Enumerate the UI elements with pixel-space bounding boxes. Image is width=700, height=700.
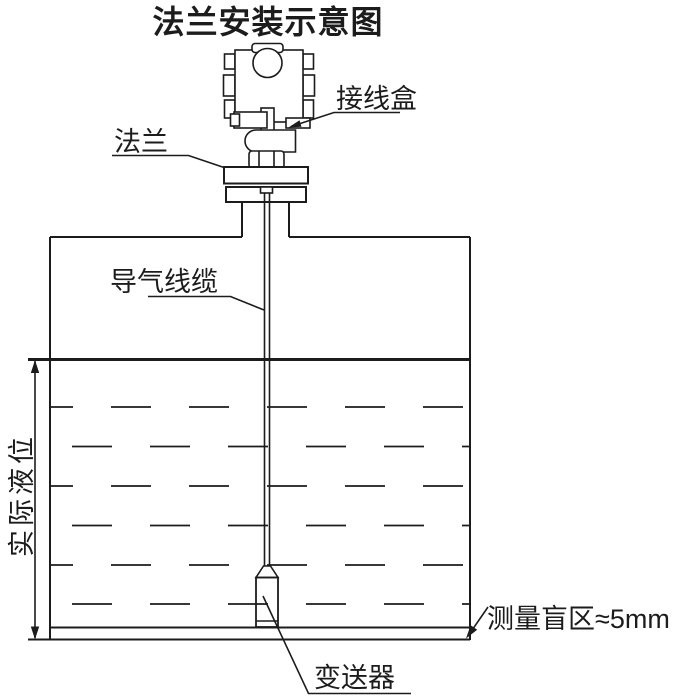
liquid-dashes: [50, 407, 470, 604]
blind-zone-label: 测量盲区≈5mm: [487, 604, 670, 634]
page-title: 法兰安装示意图: [152, 4, 383, 40]
tank-outline: [28, 237, 470, 640]
hex-nut: [249, 151, 284, 168]
air-cable-leader-line: [148, 297, 264, 311]
tank-nozzle-neck: [242, 202, 289, 237]
flange-installation-diagram: 法兰安装示意图: [0, 0, 700, 700]
swivel-connector: [245, 130, 296, 152]
air-cable-label: 导气线缆: [110, 267, 218, 297]
diagram-canvas: 法兰安装示意图: [0, 0, 700, 700]
housing-bracket-end: [231, 114, 240, 126]
junction-box-label: 接线盒: [336, 84, 417, 114]
flange-leader-line: [112, 156, 224, 168]
flange-label: 法兰: [114, 127, 168, 157]
actual-level-label: 实际液位: [7, 433, 37, 557]
transmitter-label: 变送器: [314, 663, 395, 693]
transmitter-head-drawing: [224, 44, 315, 169]
flange-plates: [224, 167, 308, 202]
housing-dome: [253, 49, 282, 78]
transmitter-weight: [256, 566, 278, 627]
air-guide-cable-line: [261, 187, 273, 566]
